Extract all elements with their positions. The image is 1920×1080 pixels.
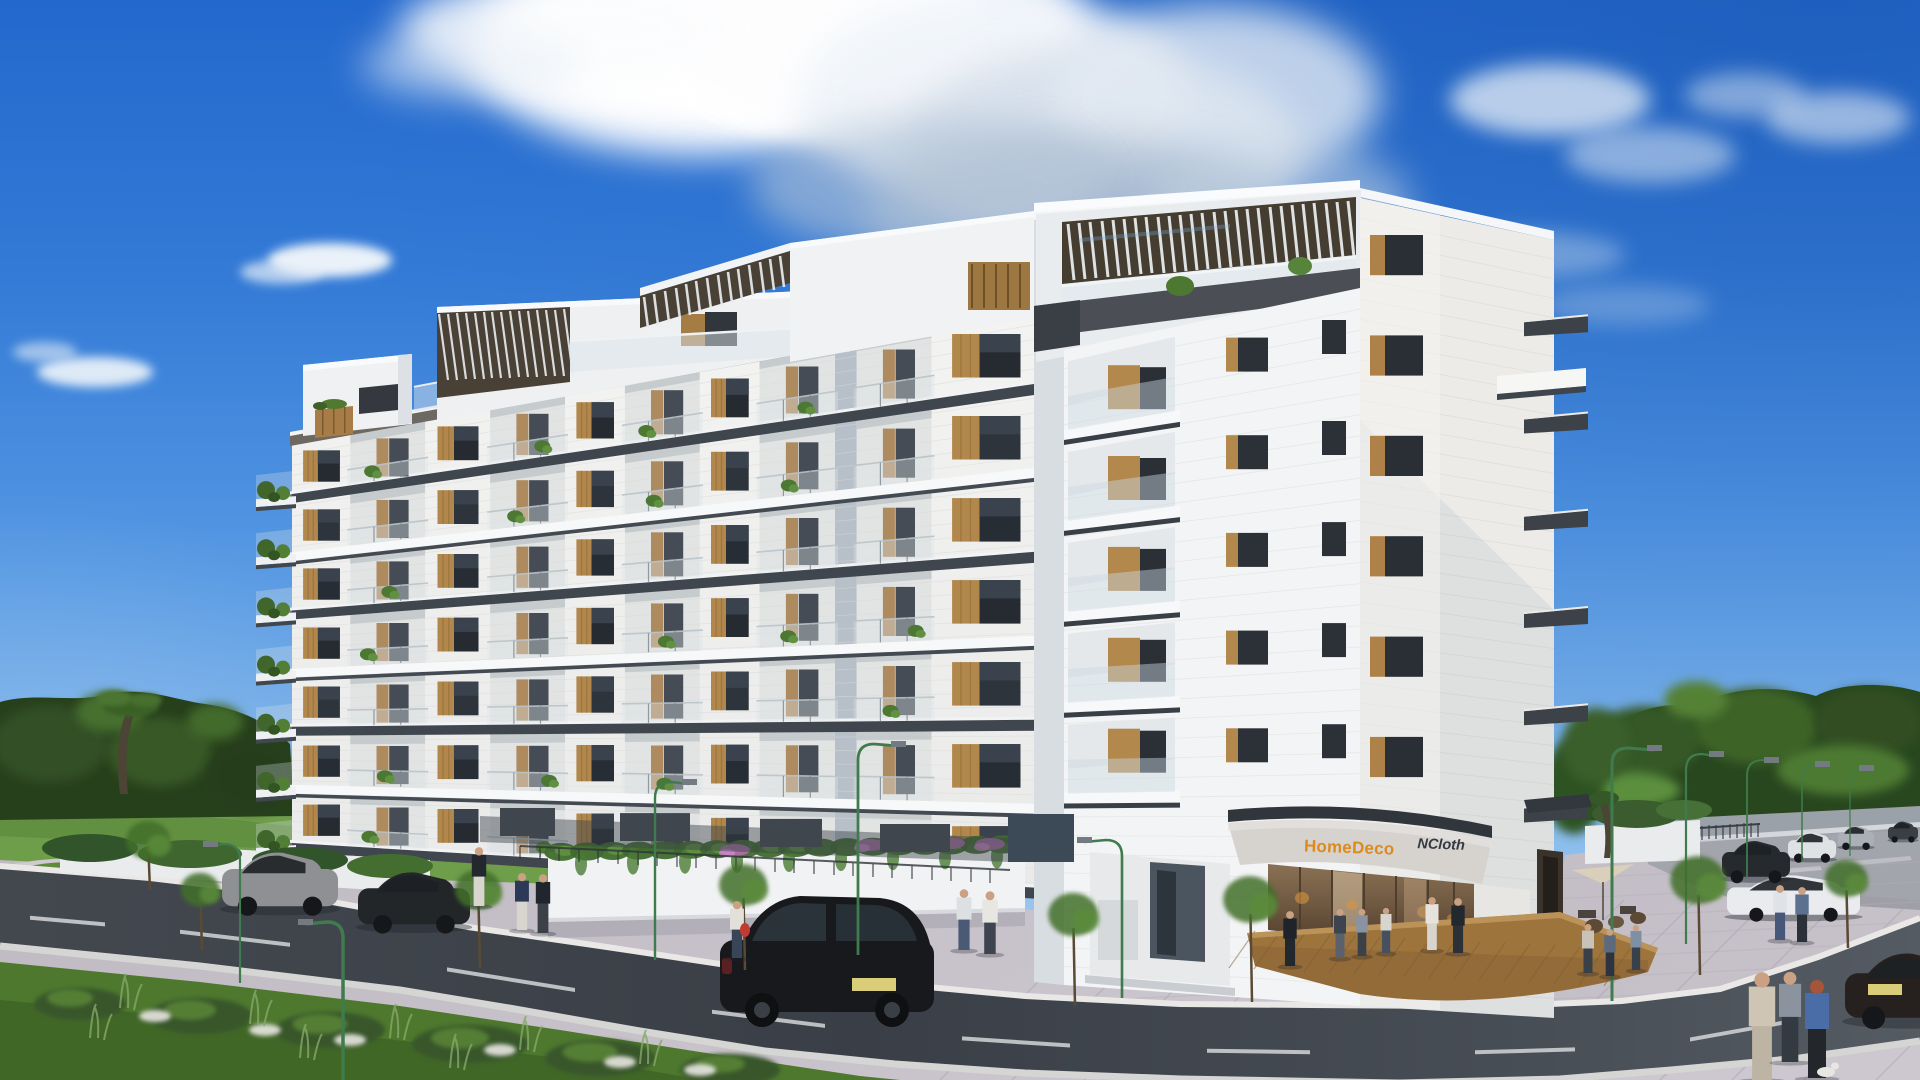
svg-text:NCloth: NCloth: [1417, 836, 1465, 854]
svg-text:HomeDeco: HomeDeco: [1304, 836, 1395, 858]
